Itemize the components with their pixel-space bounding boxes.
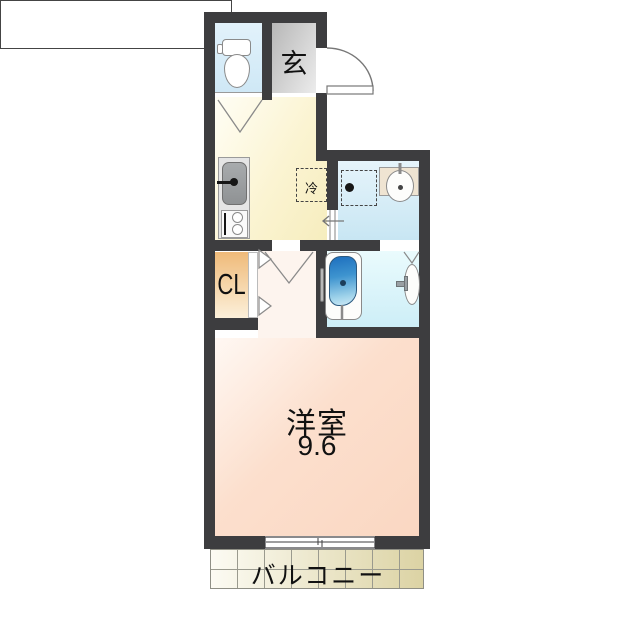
floor-plan: 冷 玄 C	[0, 0, 640, 640]
sliding-door-arrow	[323, 216, 344, 226]
main-room-size-label: 9.6	[215, 430, 419, 462]
bathroom-door-swing	[404, 252, 419, 263]
entrance-label: 玄	[272, 42, 316, 81]
closet-bifold-door-bottom	[259, 297, 271, 315]
entrance-door-arc	[327, 48, 373, 91]
room-entry-door-swing	[265, 252, 313, 283]
entrance-door-leaf	[327, 86, 373, 94]
balcony-label: バルコニー	[202, 556, 434, 592]
linework-layer	[0, 0, 640, 640]
closet-label: CL	[216, 267, 247, 301]
toilet-door-swing	[218, 100, 262, 132]
